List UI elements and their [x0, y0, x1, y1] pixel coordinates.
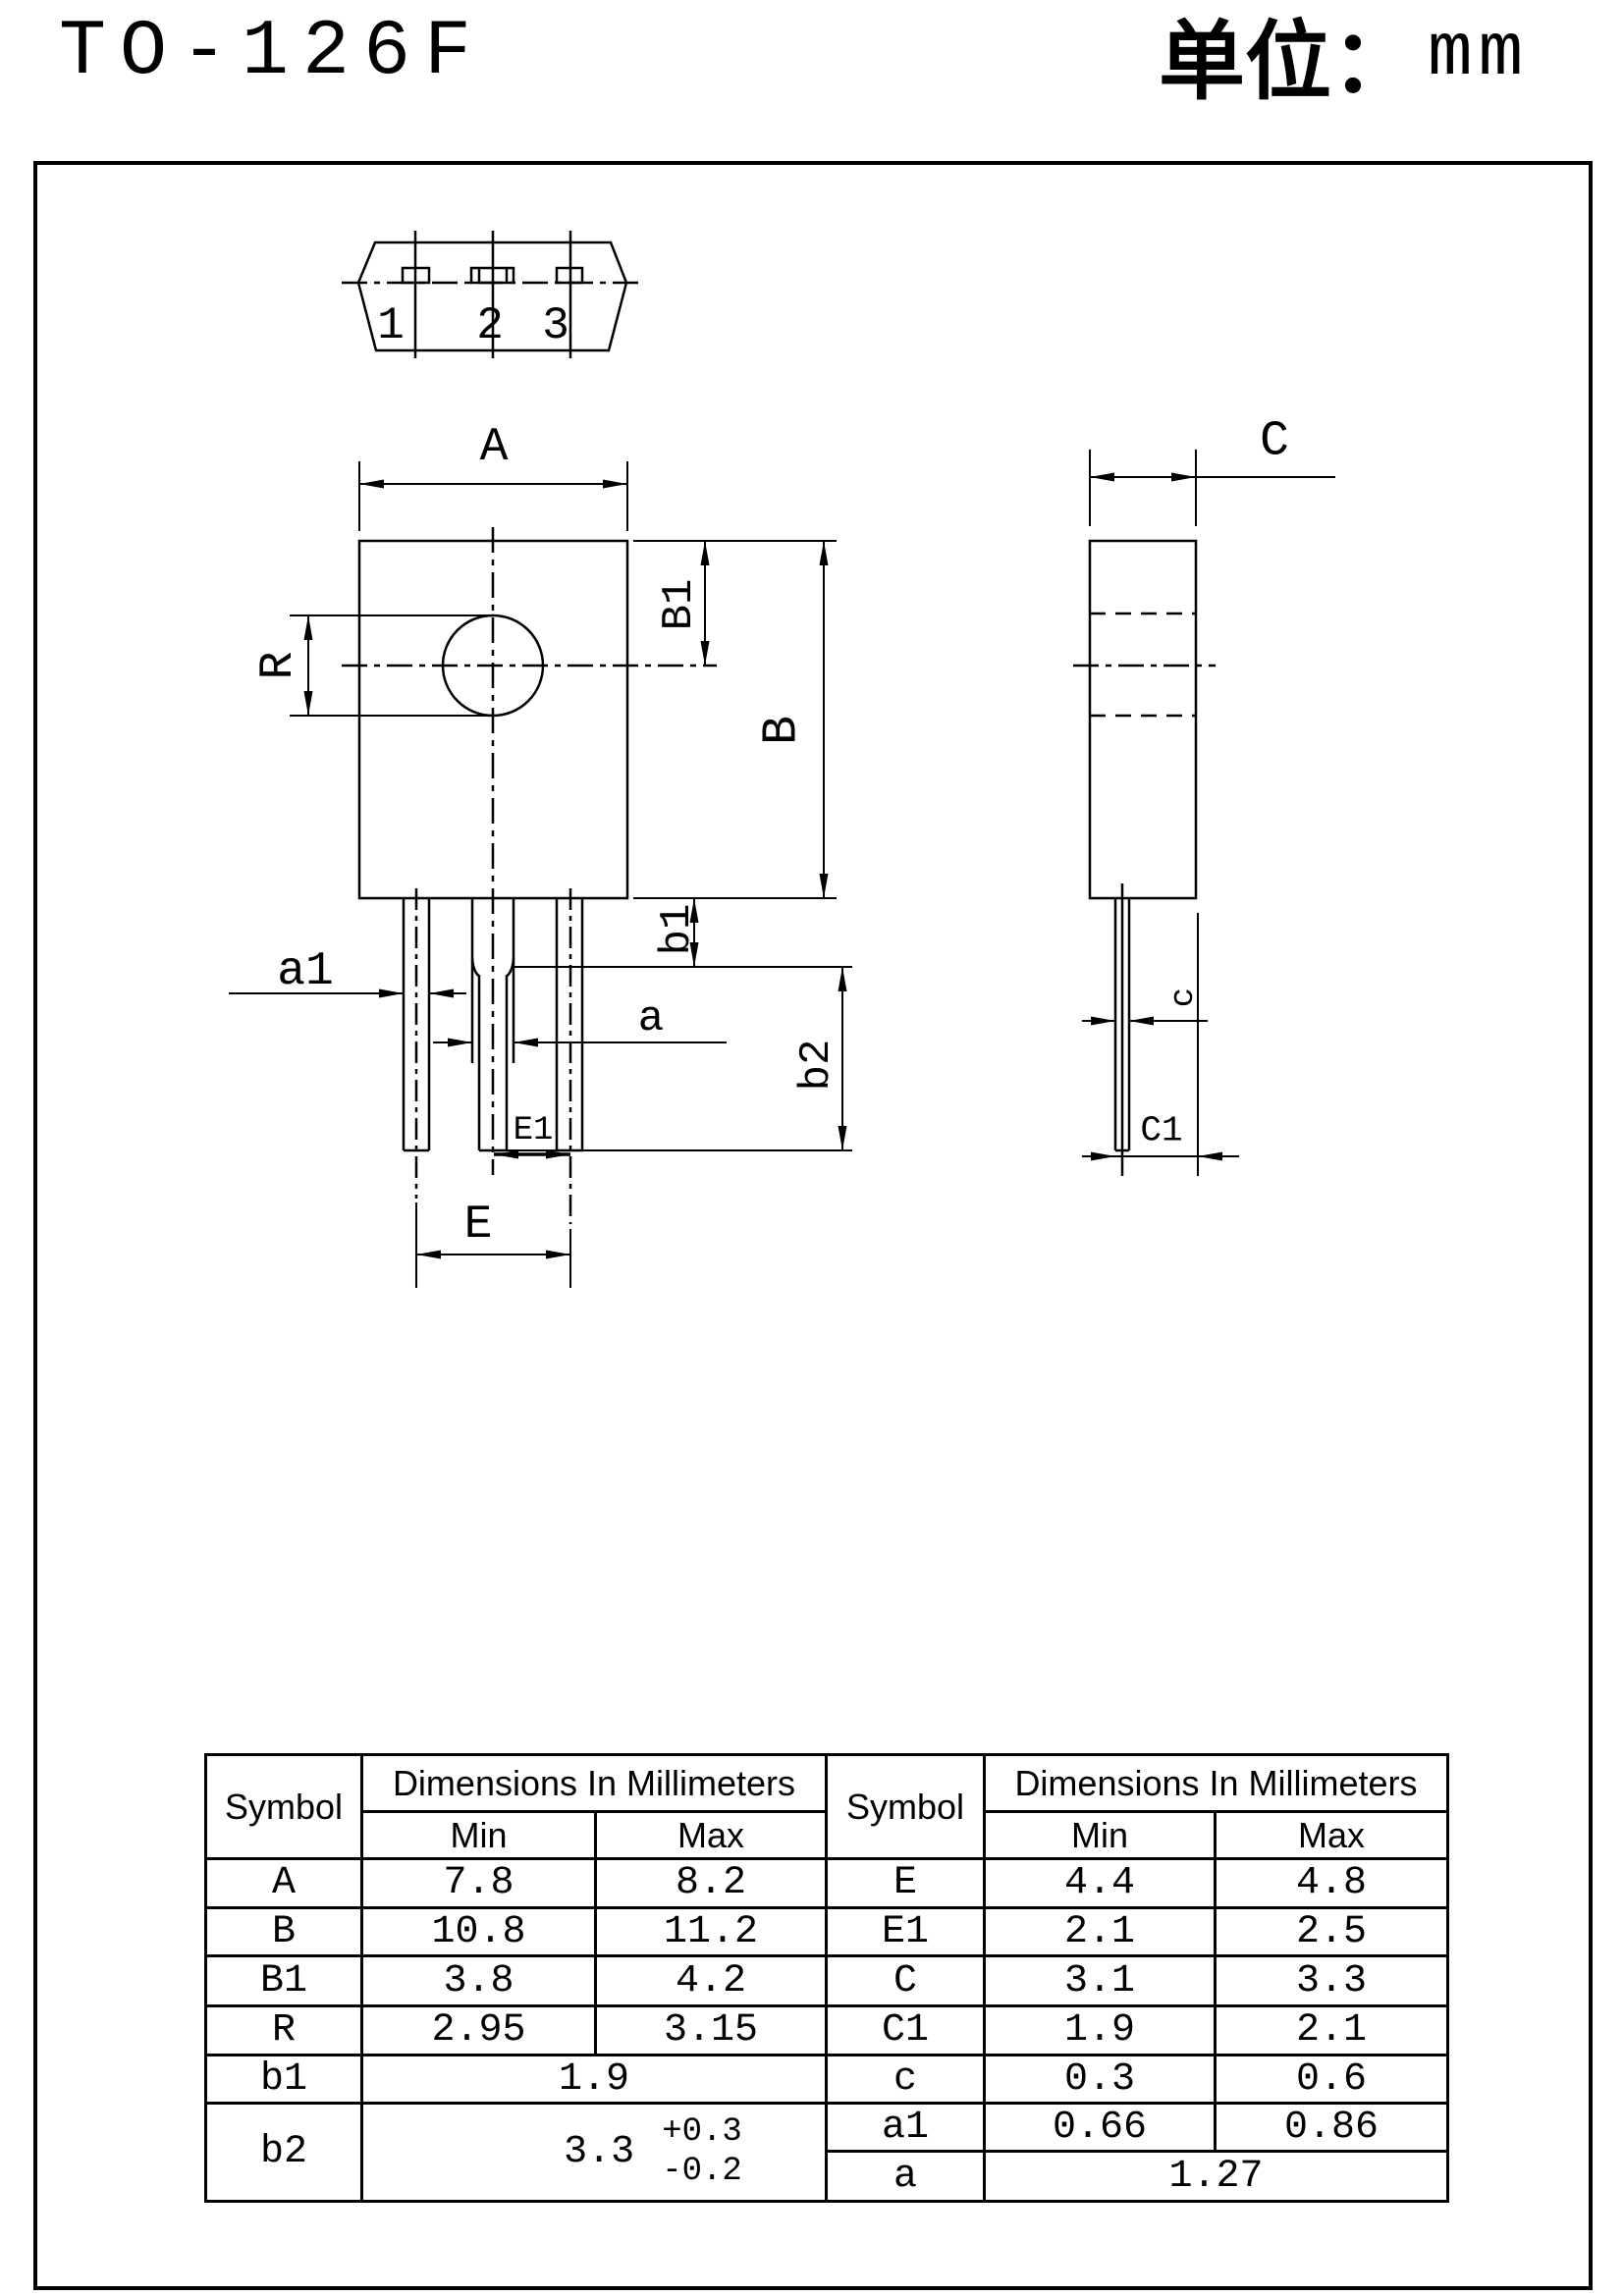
package-side-outline — [1090, 541, 1196, 898]
merged-value-cell: 1.9 — [362, 2056, 827, 2104]
symbol-cell: C1 — [827, 2006, 985, 2056]
dim-label-C1: C1 — [1140, 1111, 1182, 1151]
table-row: b2 3.3 +0.3 -0.2 a1 0.66 0.86 — [206, 2104, 1448, 2152]
front-view-dimensions — [229, 461, 852, 1288]
dim-label-B1: B1 — [655, 579, 704, 631]
min-cell: 0.3 — [985, 2056, 1216, 2104]
min-cell: 1.9 — [985, 2006, 1216, 2056]
symbol-cell: b1 — [206, 2056, 362, 2104]
table-header-row: Symbol Dimensions In Millimeters Symbol … — [206, 1755, 1448, 1812]
symbol-cell: A — [206, 1859, 362, 1908]
symbol-cell: a1 — [827, 2104, 985, 2152]
b2-tolerance: +0.3 -0.2 — [662, 2113, 742, 2190]
symbol-cell: B1 — [206, 1956, 362, 2006]
table-row: A 7.8 8.2 E 4.4 4.8 — [206, 1859, 1448, 1908]
dim-label-R: R — [252, 652, 305, 680]
max-header-left: Max — [596, 1812, 827, 1859]
datasheet-page: TO-126F 单位： mm 1 2 3 — [0, 0, 1623, 2296]
max-cell: 2.1 — [1216, 2006, 1448, 2056]
symbol-cell: c — [827, 2056, 985, 2104]
dims-header-right: Dimensions In Millimeters — [985, 1755, 1448, 1812]
dimension-table: Symbol Dimensions In Millimeters Symbol … — [204, 1753, 1449, 2203]
symbol-cell: R — [206, 2006, 362, 2056]
symbol-header-right: Symbol — [827, 1755, 985, 1859]
symbol-cell: a — [827, 2152, 985, 2202]
max-cell: 0.86 — [1216, 2104, 1448, 2152]
min-cell: 2.95 — [362, 2006, 596, 2056]
merged-value-cell: 1.27 — [985, 2152, 1448, 2202]
min-header-right: Min — [985, 1812, 1216, 1859]
dim-label-B: B — [755, 716, 811, 745]
max-cell: 3.15 — [596, 2006, 827, 2056]
dim-label-a: a — [638, 994, 664, 1043]
side-view-dimensions — [1082, 450, 1335, 1176]
dim-label-b1: b1 — [653, 904, 702, 956]
max-cell: 2.5 — [1216, 1908, 1448, 1956]
max-cell: 4.8 — [1216, 1859, 1448, 1908]
max-header-right: Max — [1216, 1812, 1448, 1859]
merged-value-cell-b2: 3.3 +0.3 -0.2 — [362, 2104, 827, 2202]
min-cell: 3.1 — [985, 1956, 1216, 2006]
max-cell: 0.6 — [1216, 2056, 1448, 2104]
dim-label-a1: a1 — [277, 945, 334, 998]
table-row: R 2.95 3.15 C1 1.9 2.1 — [206, 2006, 1448, 2056]
lead-3 — [557, 888, 582, 1224]
symbol-cell: B — [206, 1908, 362, 1956]
side-view — [1073, 541, 1216, 1176]
side-lead — [1115, 883, 1129, 1176]
min-cell: 7.8 — [362, 1859, 596, 1908]
dim-label-C: C — [1260, 414, 1289, 470]
symbol-cell: E1 — [827, 1908, 985, 1956]
table-row: b1 1.9 c 0.3 0.6 — [206, 2056, 1448, 2104]
dim-label-E: E — [464, 1199, 493, 1252]
dim-label-c: c — [1165, 988, 1203, 1007]
symbol-cell: C — [827, 1956, 985, 2006]
table-row: B 10.8 11.2 E1 2.1 2.5 — [206, 1908, 1448, 1956]
pin3-number: 3 — [542, 300, 569, 351]
dim-label-A: A — [480, 421, 509, 474]
max-cell: 3.3 — [1216, 1956, 1448, 2006]
pin2-number: 2 — [476, 300, 504, 351]
min-cell: 10.8 — [362, 1908, 596, 1956]
b2-tol-plus: +0.3 — [662, 2113, 742, 2152]
symbol-header-left: Symbol — [206, 1755, 362, 1859]
min-cell: 2.1 — [985, 1908, 1216, 1956]
symbol-cell: b2 — [206, 2104, 362, 2202]
symbol-cell: E — [827, 1859, 985, 1908]
min-header-left: Min — [362, 1812, 596, 1859]
max-cell: 11.2 — [596, 1908, 827, 1956]
dims-header-left: Dimensions In Millimeters — [362, 1755, 827, 1812]
table-row: B1 3.8 4.2 C 3.1 3.3 — [206, 1956, 1448, 2006]
pin1-number: 1 — [377, 300, 405, 351]
min-cell: 3.8 — [362, 1956, 596, 2006]
b2-tol-minus: -0.2 — [662, 2153, 742, 2191]
lead-1 — [404, 888, 429, 1199]
dim-label-E1: E1 — [514, 1112, 554, 1149]
b2-value: 3.3 — [564, 2130, 634, 2174]
dim-label-b2: b2 — [792, 1040, 841, 1092]
min-cell: 4.4 — [985, 1859, 1216, 1908]
max-cell: 8.2 — [596, 1859, 827, 1908]
max-cell: 4.2 — [596, 1956, 827, 2006]
min-cell: 0.66 — [985, 2104, 1216, 2152]
